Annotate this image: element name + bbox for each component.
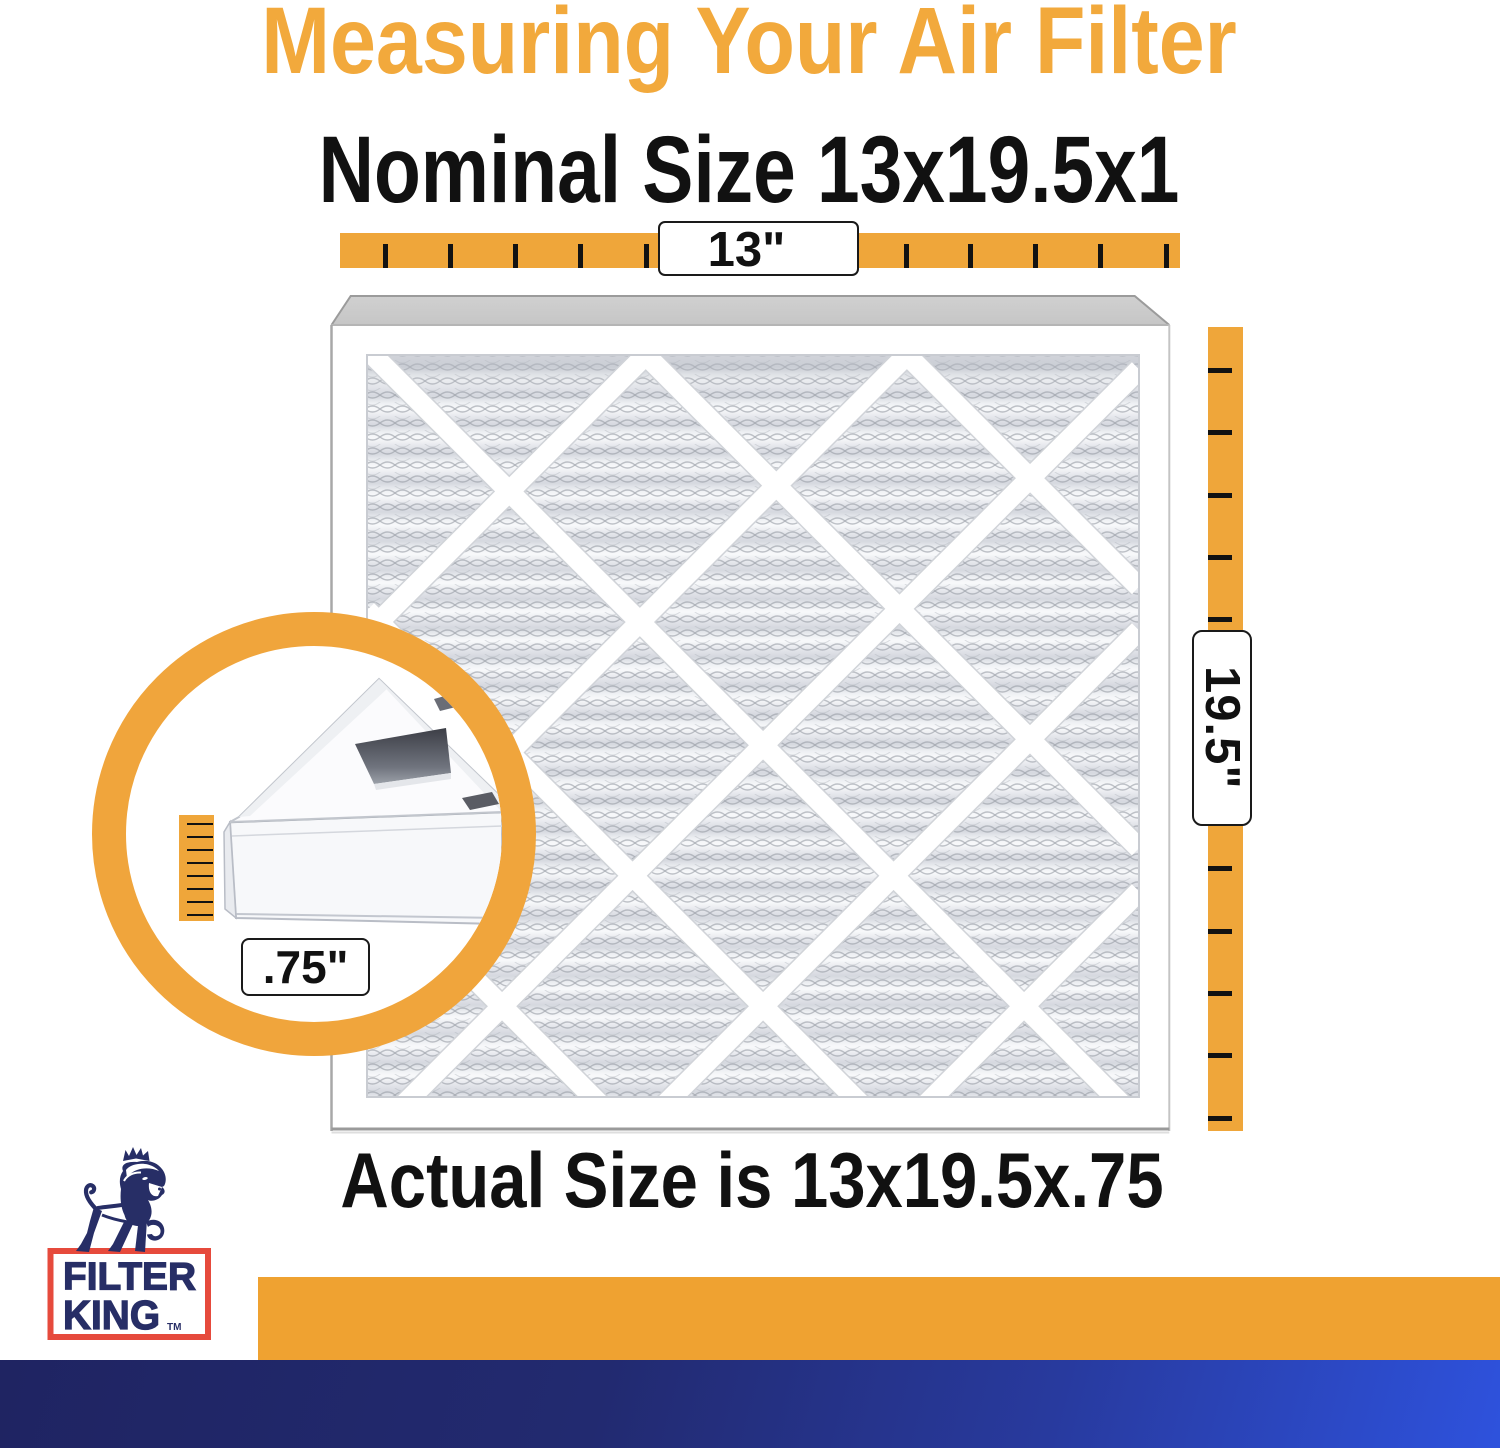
svg-text:TM: TM xyxy=(167,1322,181,1333)
svg-text:KING: KING xyxy=(63,1292,160,1338)
